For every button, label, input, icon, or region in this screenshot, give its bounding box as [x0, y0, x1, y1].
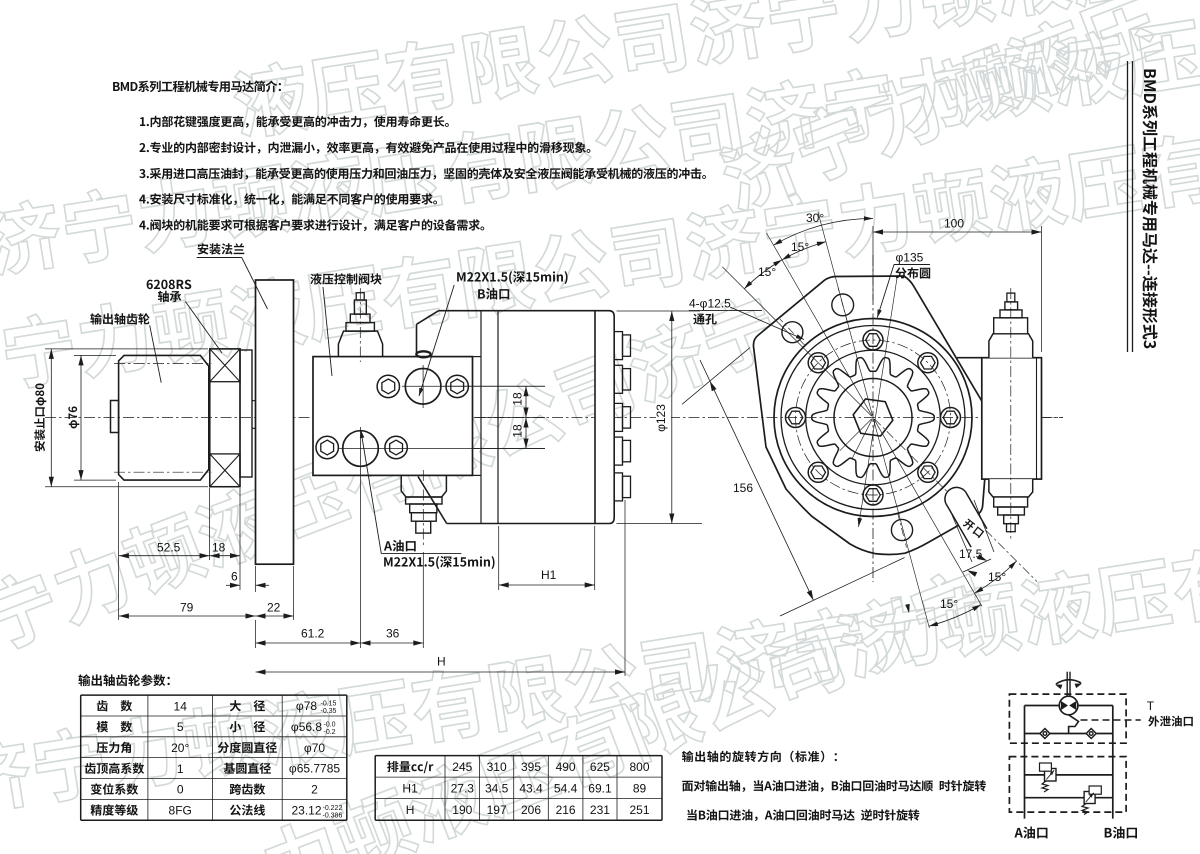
svg-text:23.12: 23.12 — [291, 803, 321, 817]
svg-text:251: 251 — [629, 803, 649, 817]
svg-text:6: 6 — [231, 570, 238, 584]
svg-text:H: H — [437, 655, 446, 669]
svg-text:17.5: 17.5 — [959, 547, 983, 561]
svg-text:54.4: 54.4 — [554, 782, 578, 796]
svg-text:15°: 15° — [791, 240, 809, 254]
svg-text:36: 36 — [386, 627, 400, 641]
svg-text:18: 18 — [511, 392, 525, 406]
svg-text:4-φ12.5: 4-φ12.5 — [689, 297, 731, 311]
svg-text:-0.0: -0.0 — [324, 721, 336, 728]
svg-text:100: 100 — [944, 217, 964, 231]
svg-text:H1: H1 — [402, 782, 418, 796]
svg-text:197: 197 — [487, 803, 507, 817]
svg-text:15°: 15° — [940, 597, 958, 611]
svg-text:43.4: 43.4 — [519, 782, 543, 796]
svg-text:H: H — [406, 803, 415, 817]
svg-text:34.5: 34.5 — [485, 782, 509, 796]
svg-text:490: 490 — [556, 760, 576, 774]
svg-text:-0.35: -0.35 — [321, 708, 337, 715]
svg-text:15°: 15° — [758, 265, 776, 279]
svg-text:φ78: φ78 — [296, 699, 317, 713]
svg-text:18: 18 — [212, 541, 226, 555]
svg-text:79: 79 — [180, 601, 194, 615]
svg-text:-0.2: -0.2 — [324, 729, 336, 736]
svg-text:395: 395 — [521, 760, 541, 774]
svg-text:8FG: 8FG — [169, 804, 192, 818]
svg-text:30°: 30° — [806, 211, 824, 225]
svg-text:206: 206 — [521, 803, 541, 817]
svg-text:156: 156 — [733, 481, 753, 495]
svg-text:52.5: 52.5 — [157, 541, 181, 555]
svg-text:89: 89 — [633, 782, 647, 796]
svg-text:69.1: 69.1 — [588, 782, 612, 796]
svg-text:φ65.7785: φ65.7785 — [289, 762, 340, 776]
svg-text:5: 5 — [177, 720, 184, 734]
svg-text:0: 0 — [177, 783, 184, 797]
svg-text:-0.386: -0.386 — [323, 812, 343, 819]
svg-text:18: 18 — [511, 424, 525, 438]
svg-text:245: 245 — [452, 760, 472, 774]
svg-text:φ70: φ70 — [304, 741, 325, 755]
svg-text:φ123: φ123 — [654, 404, 668, 432]
svg-text:-0.222: -0.222 — [323, 805, 343, 812]
svg-text:H1: H1 — [541, 568, 557, 582]
svg-text:27.3: 27.3 — [451, 782, 475, 796]
svg-text:231: 231 — [590, 803, 610, 817]
svg-text:-0.15: -0.15 — [321, 701, 337, 708]
svg-text:14: 14 — [174, 699, 188, 713]
svg-text:φ56.8: φ56.8 — [291, 720, 322, 734]
svg-text:20°: 20° — [171, 741, 189, 755]
svg-text:15°: 15° — [988, 570, 1006, 584]
svg-text:2: 2 — [311, 783, 318, 797]
svg-text:61.2: 61.2 — [301, 627, 325, 641]
svg-text:T: T — [1147, 699, 1155, 713]
svg-text:22: 22 — [267, 601, 281, 615]
svg-text:310: 310 — [487, 760, 507, 774]
svg-text:800: 800 — [629, 760, 649, 774]
svg-text:190: 190 — [452, 803, 472, 817]
svg-text:1: 1 — [177, 762, 184, 776]
svg-text:φ135: φ135 — [896, 251, 924, 265]
svg-text:216: 216 — [556, 803, 576, 817]
svg-text:625: 625 — [590, 760, 610, 774]
